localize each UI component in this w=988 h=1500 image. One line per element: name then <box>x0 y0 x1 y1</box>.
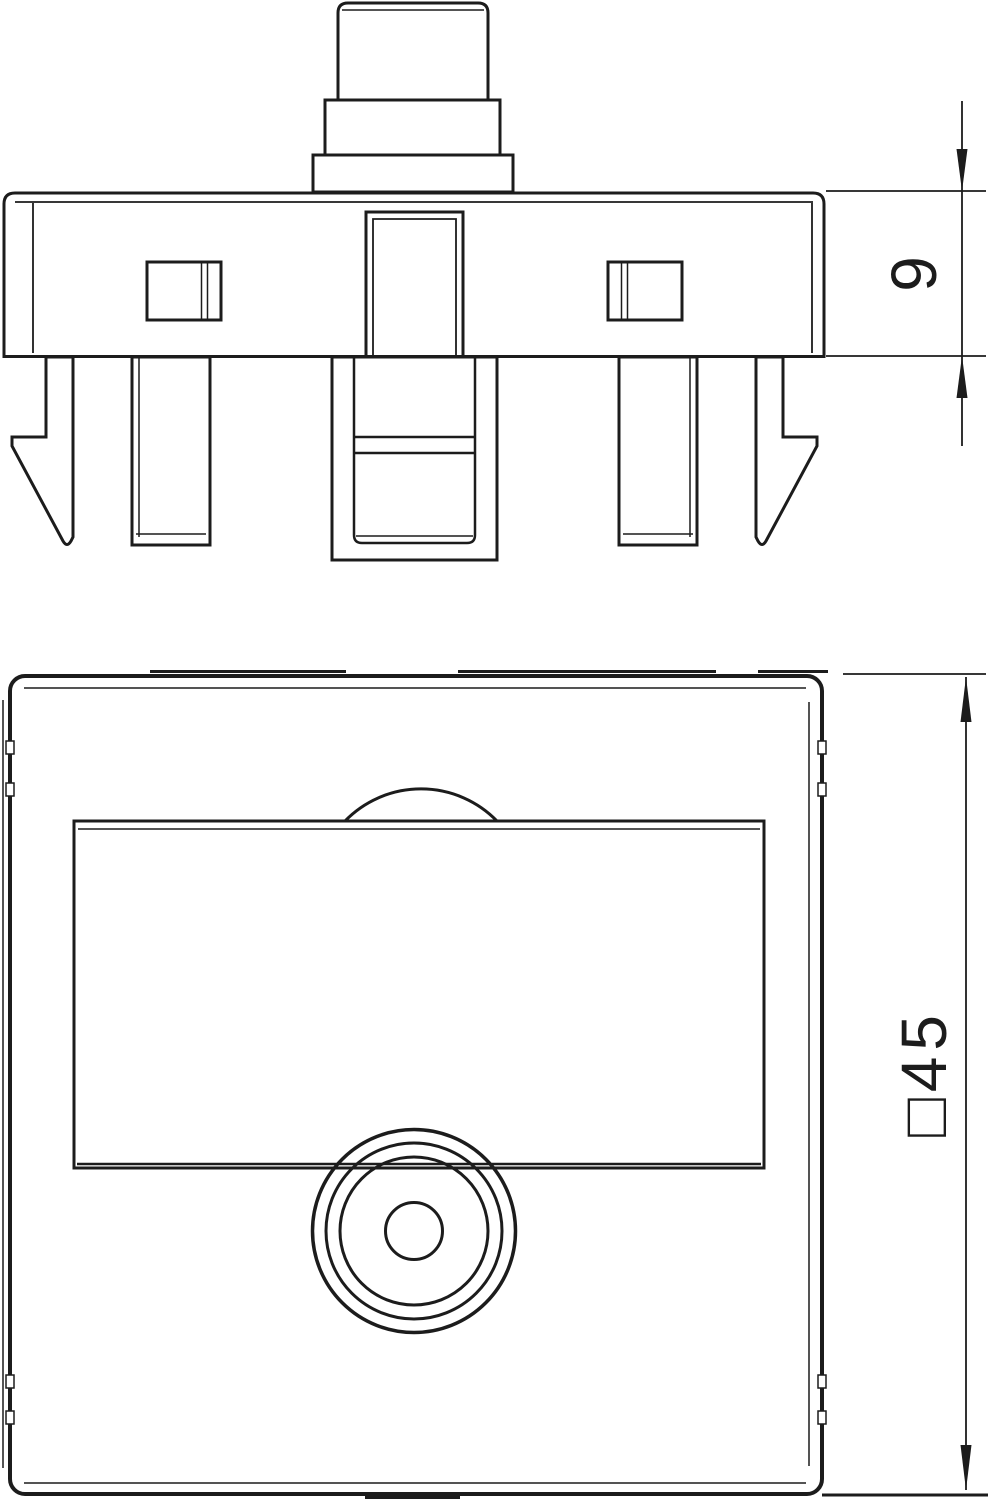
right-latch-leg <box>619 357 697 545</box>
arrowhead-up <box>961 677 972 722</box>
arrowhead-down <box>957 149 968 191</box>
technical-drawing: 9 <box>0 0 988 1500</box>
dimension-label-45: □45 <box>888 1009 960 1137</box>
right-latch-window <box>608 262 682 320</box>
right-retaining-hook <box>756 357 817 545</box>
edge-notch <box>818 1375 826 1388</box>
center-latch-housing <box>332 357 497 560</box>
front-view <box>3 672 828 1500</box>
arrowhead-up <box>957 356 968 398</box>
connector-plug-step-lower <box>313 155 513 192</box>
module-body-plate <box>4 193 824 357</box>
connector-plug-barrel <box>338 3 488 100</box>
edge-notch <box>6 741 14 754</box>
edge-notch <box>6 1411 14 1424</box>
left-retaining-hook <box>12 357 73 545</box>
label-field-frame <box>74 821 764 1168</box>
dimension-plate-size: □45 <box>822 674 988 1495</box>
edge-notch <box>818 783 826 796</box>
edge-notch <box>6 1375 14 1388</box>
dimension-label-9: 9 <box>878 256 950 292</box>
arrowhead-down <box>961 1445 972 1490</box>
edge-notch <box>6 783 14 796</box>
left-latch-window-frame <box>147 262 221 320</box>
label-field <box>74 821 764 1168</box>
dimension-plate-thickness: 9 <box>826 101 986 446</box>
left-latch-window <box>147 262 221 320</box>
left-latch-leg-body <box>132 357 210 545</box>
edge-notch <box>818 1411 826 1424</box>
cover-plate-bottom-center-tab <box>365 1493 460 1499</box>
side-view <box>4 3 824 560</box>
connector-plug-step-upper <box>325 100 500 155</box>
drawing-canvas: 9 <box>0 0 988 1500</box>
right-latch-window-frame <box>608 262 682 320</box>
left-latch-leg <box>132 357 210 545</box>
right-latch-leg-body <box>619 357 697 545</box>
center-latch-housing-body <box>332 357 497 560</box>
edge-notch <box>818 741 826 754</box>
